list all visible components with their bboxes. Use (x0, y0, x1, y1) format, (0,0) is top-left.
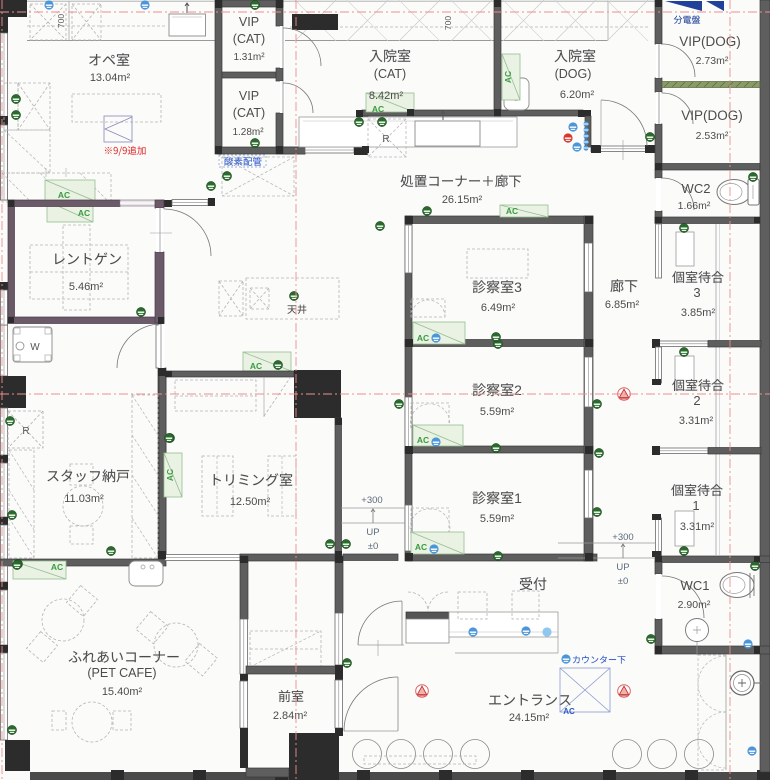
svg-text:5.59m²: 5.59m² (480, 513, 515, 525)
svg-text:VIP: VIP (239, 15, 259, 29)
svg-text:AC: AC (372, 104, 384, 114)
svg-text:2.84m²: 2.84m² (273, 710, 308, 722)
svg-text:2.53m²: 2.53m² (696, 130, 729, 142)
svg-text:1.28m²: 1.28m² (232, 127, 264, 138)
svg-text:2: 2 (514, 382, 522, 398)
svg-text:W: W (30, 342, 40, 353)
svg-text:WC1: WC1 (681, 578, 710, 593)
svg-text:12.50m²: 12.50m² (230, 496, 271, 508)
svg-text:1: 1 (514, 490, 522, 506)
svg-text:±0: ±0 (618, 576, 629, 587)
svg-text:3.85m²: 3.85m² (681, 307, 716, 319)
svg-text:1.66m²: 1.66m² (678, 200, 711, 212)
svg-text:24.15m²: 24.15m² (509, 712, 550, 724)
svg-text:AC: AC (417, 435, 429, 445)
svg-text:5.59m²: 5.59m² (480, 406, 515, 418)
svg-text:AC: AC (415, 542, 427, 552)
svg-text:(PET CAFE): (PET CAFE) (87, 666, 156, 680)
svg-text:8.42m²: 8.42m² (369, 90, 404, 102)
svg-text:13.04m²: 13.04m² (90, 72, 131, 84)
svg-text:AC: AC (51, 562, 63, 572)
svg-text:(CAT): (CAT) (374, 67, 406, 81)
svg-text:VIP(DOG): VIP(DOG) (679, 34, 741, 49)
svg-text:1.31m²: 1.31m² (233, 52, 265, 63)
svg-text:VIP: VIP (239, 89, 259, 103)
svg-text:(DOG): (DOG) (555, 67, 592, 81)
svg-text:VIP(DOG): VIP(DOG) (681, 108, 743, 123)
svg-text:6.49m²: 6.49m² (481, 302, 516, 314)
svg-text:+300: +300 (612, 532, 633, 543)
svg-text:(CAT): (CAT) (233, 106, 265, 120)
svg-text:6.20m²: 6.20m² (560, 89, 595, 101)
svg-text:AC: AC (417, 333, 429, 343)
svg-text:AC: AC (503, 71, 513, 83)
svg-text:UP: UP (366, 527, 379, 538)
svg-text:15.40m²: 15.40m² (102, 686, 143, 698)
svg-text:AC: AC (78, 208, 90, 218)
svg-text:1: 1 (692, 498, 699, 513)
svg-text:WC2: WC2 (682, 181, 711, 196)
svg-text:5.46m²: 5.46m² (69, 281, 104, 293)
svg-text:R: R (22, 426, 29, 437)
svg-text:AC: AC (58, 190, 70, 200)
svg-text:AC: AC (250, 361, 262, 371)
svg-text:AC: AC (506, 206, 518, 216)
svg-text:(CAT): (CAT) (233, 32, 265, 46)
svg-text:AC: AC (563, 707, 575, 716)
svg-text:2: 2 (693, 393, 700, 408)
svg-text:700: 700 (443, 16, 453, 30)
svg-text:11.03m²: 11.03m² (64, 493, 104, 505)
svg-text:2.73m²: 2.73m² (696, 55, 729, 67)
svg-text:±0: ±0 (368, 541, 379, 552)
svg-text:3: 3 (693, 285, 700, 300)
svg-text:AC: AC (165, 469, 175, 481)
svg-text:700: 700 (56, 14, 66, 28)
svg-text:3.31m²: 3.31m² (680, 521, 715, 533)
svg-text:26.15m²: 26.15m² (442, 194, 483, 206)
svg-text:R: R (382, 134, 389, 145)
svg-text:6.85m²: 6.85m² (605, 299, 640, 311)
svg-text:3: 3 (514, 279, 522, 295)
svg-text:3.31m²: 3.31m² (679, 415, 714, 427)
svg-text:+300: +300 (361, 495, 382, 506)
svg-text:UP: UP (616, 562, 629, 573)
svg-text:2.90m²: 2.90m² (678, 599, 711, 611)
